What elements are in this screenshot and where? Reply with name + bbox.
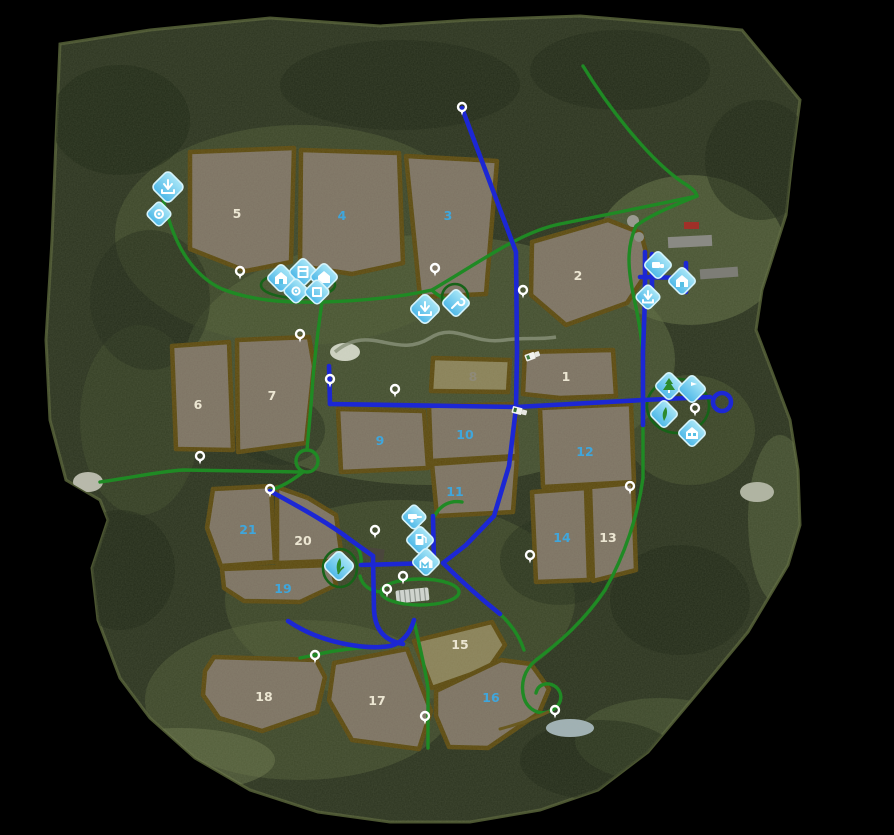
field-3-label: 3 [444,208,453,223]
field-7-label: 7 [268,388,277,403]
field-9-label: 9 [376,433,385,448]
map-overview: 1 2 3 4 5 6 7 8 9 10 11 12 13 14 15 16 1… [0,0,894,835]
field-15-label: 15 [451,637,468,652]
field-2-label: 2 [574,268,583,283]
field-20-label: 20 [294,533,312,548]
terrain-noise [0,0,894,835]
field-1-label: 1 [562,369,571,384]
field-14-label: 14 [553,530,571,545]
field-12-label: 12 [576,444,593,459]
silo-tank-2 [634,232,644,242]
field-6-label: 6 [194,397,203,412]
red-building [684,222,699,229]
field-19-label: 19 [274,581,291,596]
field-17-label: 17 [368,693,385,708]
field-8-label: 8 [469,369,478,384]
field-18-label: 18 [255,689,272,704]
field-4-label: 4 [338,208,347,223]
field-21-label: 21 [239,522,256,537]
field-11-label: 11 [446,484,463,499]
field-5-label: 5 [233,206,242,221]
field-10-label: 10 [456,427,474,442]
field-13-label: 13 [599,530,616,545]
field-16-label: 16 [482,690,500,705]
